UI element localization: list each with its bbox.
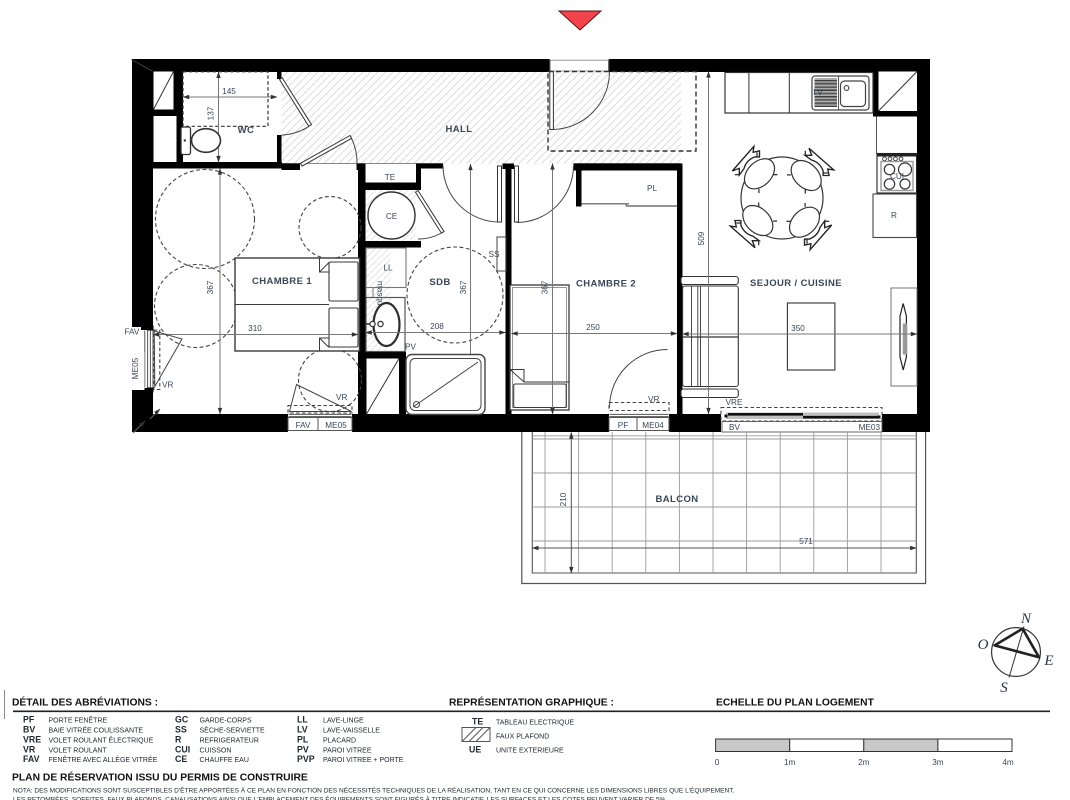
svg-text:2m: 2m bbox=[858, 758, 870, 767]
svg-text:208: 208 bbox=[430, 322, 444, 331]
svg-text:REPRÉSENTATION GRAPHIQUE :: REPRÉSENTATION GRAPHIQUE : bbox=[449, 696, 614, 709]
svg-text:ME03: ME03 bbox=[859, 423, 881, 432]
svg-text:DÉTAIL DES ABRÉVIATIONS :: DÉTAIL DES ABRÉVIATIONS : bbox=[12, 696, 158, 709]
svg-text:VRE: VRE bbox=[23, 734, 41, 744]
svg-text:CE: CE bbox=[386, 212, 398, 221]
svg-text:CE: CE bbox=[175, 754, 187, 764]
svg-text:ME05: ME05 bbox=[131, 357, 140, 379]
svg-text:PF: PF bbox=[618, 421, 628, 430]
svg-text:PV: PV bbox=[297, 744, 309, 754]
svg-text:TE: TE bbox=[472, 717, 483, 727]
svg-text:VR: VR bbox=[648, 395, 659, 404]
svg-text:137: 137 bbox=[207, 106, 216, 120]
svg-text:UE: UE bbox=[469, 745, 481, 755]
svg-text:LV: LV bbox=[813, 88, 823, 97]
svg-text:WC: WC bbox=[238, 125, 255, 136]
svg-text:PVP: PVP bbox=[297, 754, 315, 764]
svg-text:BALCON: BALCON bbox=[655, 494, 698, 505]
svg-text:PF: PF bbox=[23, 715, 35, 725]
svg-text:SS: SS bbox=[489, 250, 500, 259]
svg-text:PLACARD: PLACARD bbox=[323, 737, 356, 744]
svg-text:TE: TE bbox=[385, 173, 396, 182]
svg-text:VOLET ROULANT: VOLET ROULANT bbox=[49, 747, 108, 754]
svg-text:R: R bbox=[175, 734, 182, 744]
svg-text:509: 509 bbox=[697, 231, 706, 245]
svg-text:PLAN DE RÉSERVATION ISSU DU PE: PLAN DE RÉSERVATION ISSU DU PERMIS DE CO… bbox=[12, 771, 308, 784]
svg-text:REFRIGERATEUR: REFRIGERATEUR bbox=[200, 737, 259, 744]
svg-text:LAVE-VAISSELLE: LAVE-VAISSELLE bbox=[323, 728, 380, 735]
svg-text:CUI: CUI bbox=[175, 744, 190, 754]
svg-text:PL: PL bbox=[647, 184, 657, 193]
svg-text:SS: SS bbox=[175, 725, 187, 735]
svg-text:BAIE VITRÉE COULISSANTE: BAIE VITRÉE COULISSANTE bbox=[49, 726, 144, 735]
svg-text:1m: 1m bbox=[784, 758, 796, 767]
svg-text:O: O bbox=[978, 637, 989, 653]
svg-text:FAV: FAV bbox=[23, 754, 40, 764]
svg-text:PORTE FENÊTRE: PORTE FENÊTRE bbox=[49, 716, 108, 725]
svg-text:250: 250 bbox=[586, 323, 600, 332]
svg-text:FENÊTRE AVEC ALLÈGE VITRÉE: FENÊTRE AVEC ALLÈGE VITRÉE bbox=[49, 755, 158, 764]
svg-text:367: 367 bbox=[206, 280, 215, 294]
svg-text:FAUX PLAFOND: FAUX PLAFOND bbox=[496, 734, 549, 741]
svg-text:NOTA: DES MODIFICATIONS SONT S: NOTA: DES MODIFICATIONS SONT SUSCEPTIBLE… bbox=[13, 785, 735, 794]
svg-text:571: 571 bbox=[799, 537, 813, 546]
svg-text:BV: BV bbox=[23, 725, 35, 735]
svg-text:TABLEAU ELECTRIQUE: TABLEAU ELECTRIQUE bbox=[496, 720, 574, 727]
svg-text:ME04: ME04 bbox=[642, 421, 664, 430]
svg-text:R: R bbox=[891, 211, 897, 220]
svg-text:VR: VR bbox=[23, 744, 36, 754]
svg-text:FAV: FAV bbox=[125, 328, 140, 337]
svg-text:N: N bbox=[1020, 611, 1032, 627]
svg-text:LAVE-LINGE: LAVE-LINGE bbox=[323, 718, 364, 725]
svg-text:VOLET ROULANT ÉLECTRIQUE: VOLET ROULANT ÉLECTRIQUE bbox=[49, 735, 154, 744]
svg-text:PAROI VITREE + PORTE: PAROI VITREE + PORTE bbox=[323, 757, 404, 764]
svg-text:145: 145 bbox=[222, 87, 236, 96]
svg-text:LL: LL bbox=[297, 715, 308, 725]
svg-text:CUI: CUI bbox=[890, 172, 904, 181]
svg-text:FAV: FAV bbox=[296, 421, 311, 430]
svg-text:CUISSON: CUISSON bbox=[200, 747, 232, 754]
svg-text:PV: PV bbox=[405, 343, 416, 352]
svg-text:ECHELLE DU PLAN LOGEMENT: ECHELLE DU PLAN LOGEMENT bbox=[716, 698, 875, 709]
svg-text:GARDE-CORPS: GARDE-CORPS bbox=[200, 718, 252, 725]
svg-text:0: 0 bbox=[715, 758, 720, 767]
svg-text:LL: LL bbox=[383, 264, 393, 273]
svg-text:367: 367 bbox=[541, 280, 550, 294]
svg-text:UNITE EXTERIEURE: UNITE EXTERIEURE bbox=[496, 748, 564, 755]
svg-text:PL: PL bbox=[297, 734, 309, 744]
svg-text:VR: VR bbox=[162, 381, 173, 390]
svg-text:CHAMBRE 1: CHAMBRE 1 bbox=[252, 276, 312, 287]
svg-text:CHAMBRE 2: CHAMBRE 2 bbox=[576, 279, 636, 290]
svg-text:GC: GC bbox=[175, 715, 189, 725]
svg-text:210: 210 bbox=[559, 492, 568, 506]
svg-text:VR: VR bbox=[336, 393, 347, 402]
svg-text:PAROI VITREE: PAROI VITREE bbox=[323, 747, 372, 754]
svg-text:SEJOUR / CUISINE: SEJOUR / CUISINE bbox=[750, 278, 842, 289]
svg-text:LV: LV bbox=[297, 725, 308, 735]
svg-text:310: 310 bbox=[248, 324, 262, 333]
svg-text:E: E bbox=[1043, 653, 1053, 669]
svg-text:SÈCHE-SERVIETTE: SÈCHE-SERVIETTE bbox=[200, 726, 266, 735]
svg-text:SDB: SDB bbox=[429, 277, 450, 288]
svg-text:S: S bbox=[1000, 680, 1008, 696]
svg-text:CHAUFFE EAU: CHAUFFE EAU bbox=[200, 757, 249, 764]
svg-text:ME05: ME05 bbox=[325, 421, 347, 430]
svg-text:BV: BV bbox=[729, 423, 740, 432]
svg-text:4m: 4m bbox=[1002, 758, 1014, 767]
svg-text:3m: 3m bbox=[932, 758, 944, 767]
svg-text:HALL: HALL bbox=[446, 124, 473, 135]
svg-text:367: 367 bbox=[459, 280, 468, 294]
svg-text:VRE: VRE bbox=[726, 398, 743, 407]
svg-text:350: 350 bbox=[791, 324, 805, 333]
